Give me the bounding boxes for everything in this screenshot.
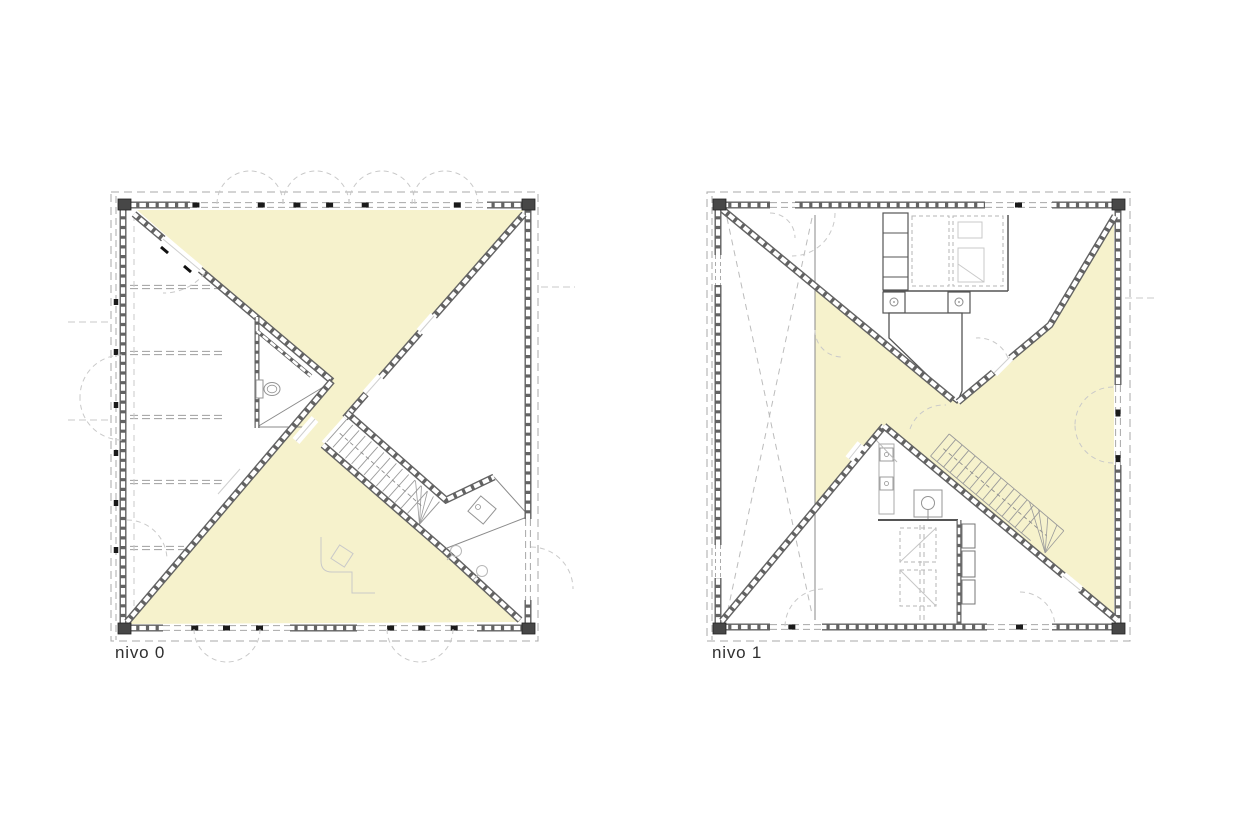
drawing-canvas: nivo 0 nivo 1 bbox=[0, 0, 1256, 838]
floor-plan-drawing bbox=[0, 0, 1256, 838]
column-icon bbox=[477, 566, 488, 577]
shower-icon bbox=[468, 496, 496, 524]
column-icon bbox=[451, 546, 462, 557]
floor-plan-nivo-0 bbox=[127, 210, 524, 624]
highlight-area-nivo-0 bbox=[127, 210, 524, 624]
plan-label-nivo-1: nivo 1 bbox=[712, 643, 762, 663]
plan-label-nivo-0: nivo 0 bbox=[115, 643, 165, 663]
toilet-icon bbox=[256, 380, 263, 398]
